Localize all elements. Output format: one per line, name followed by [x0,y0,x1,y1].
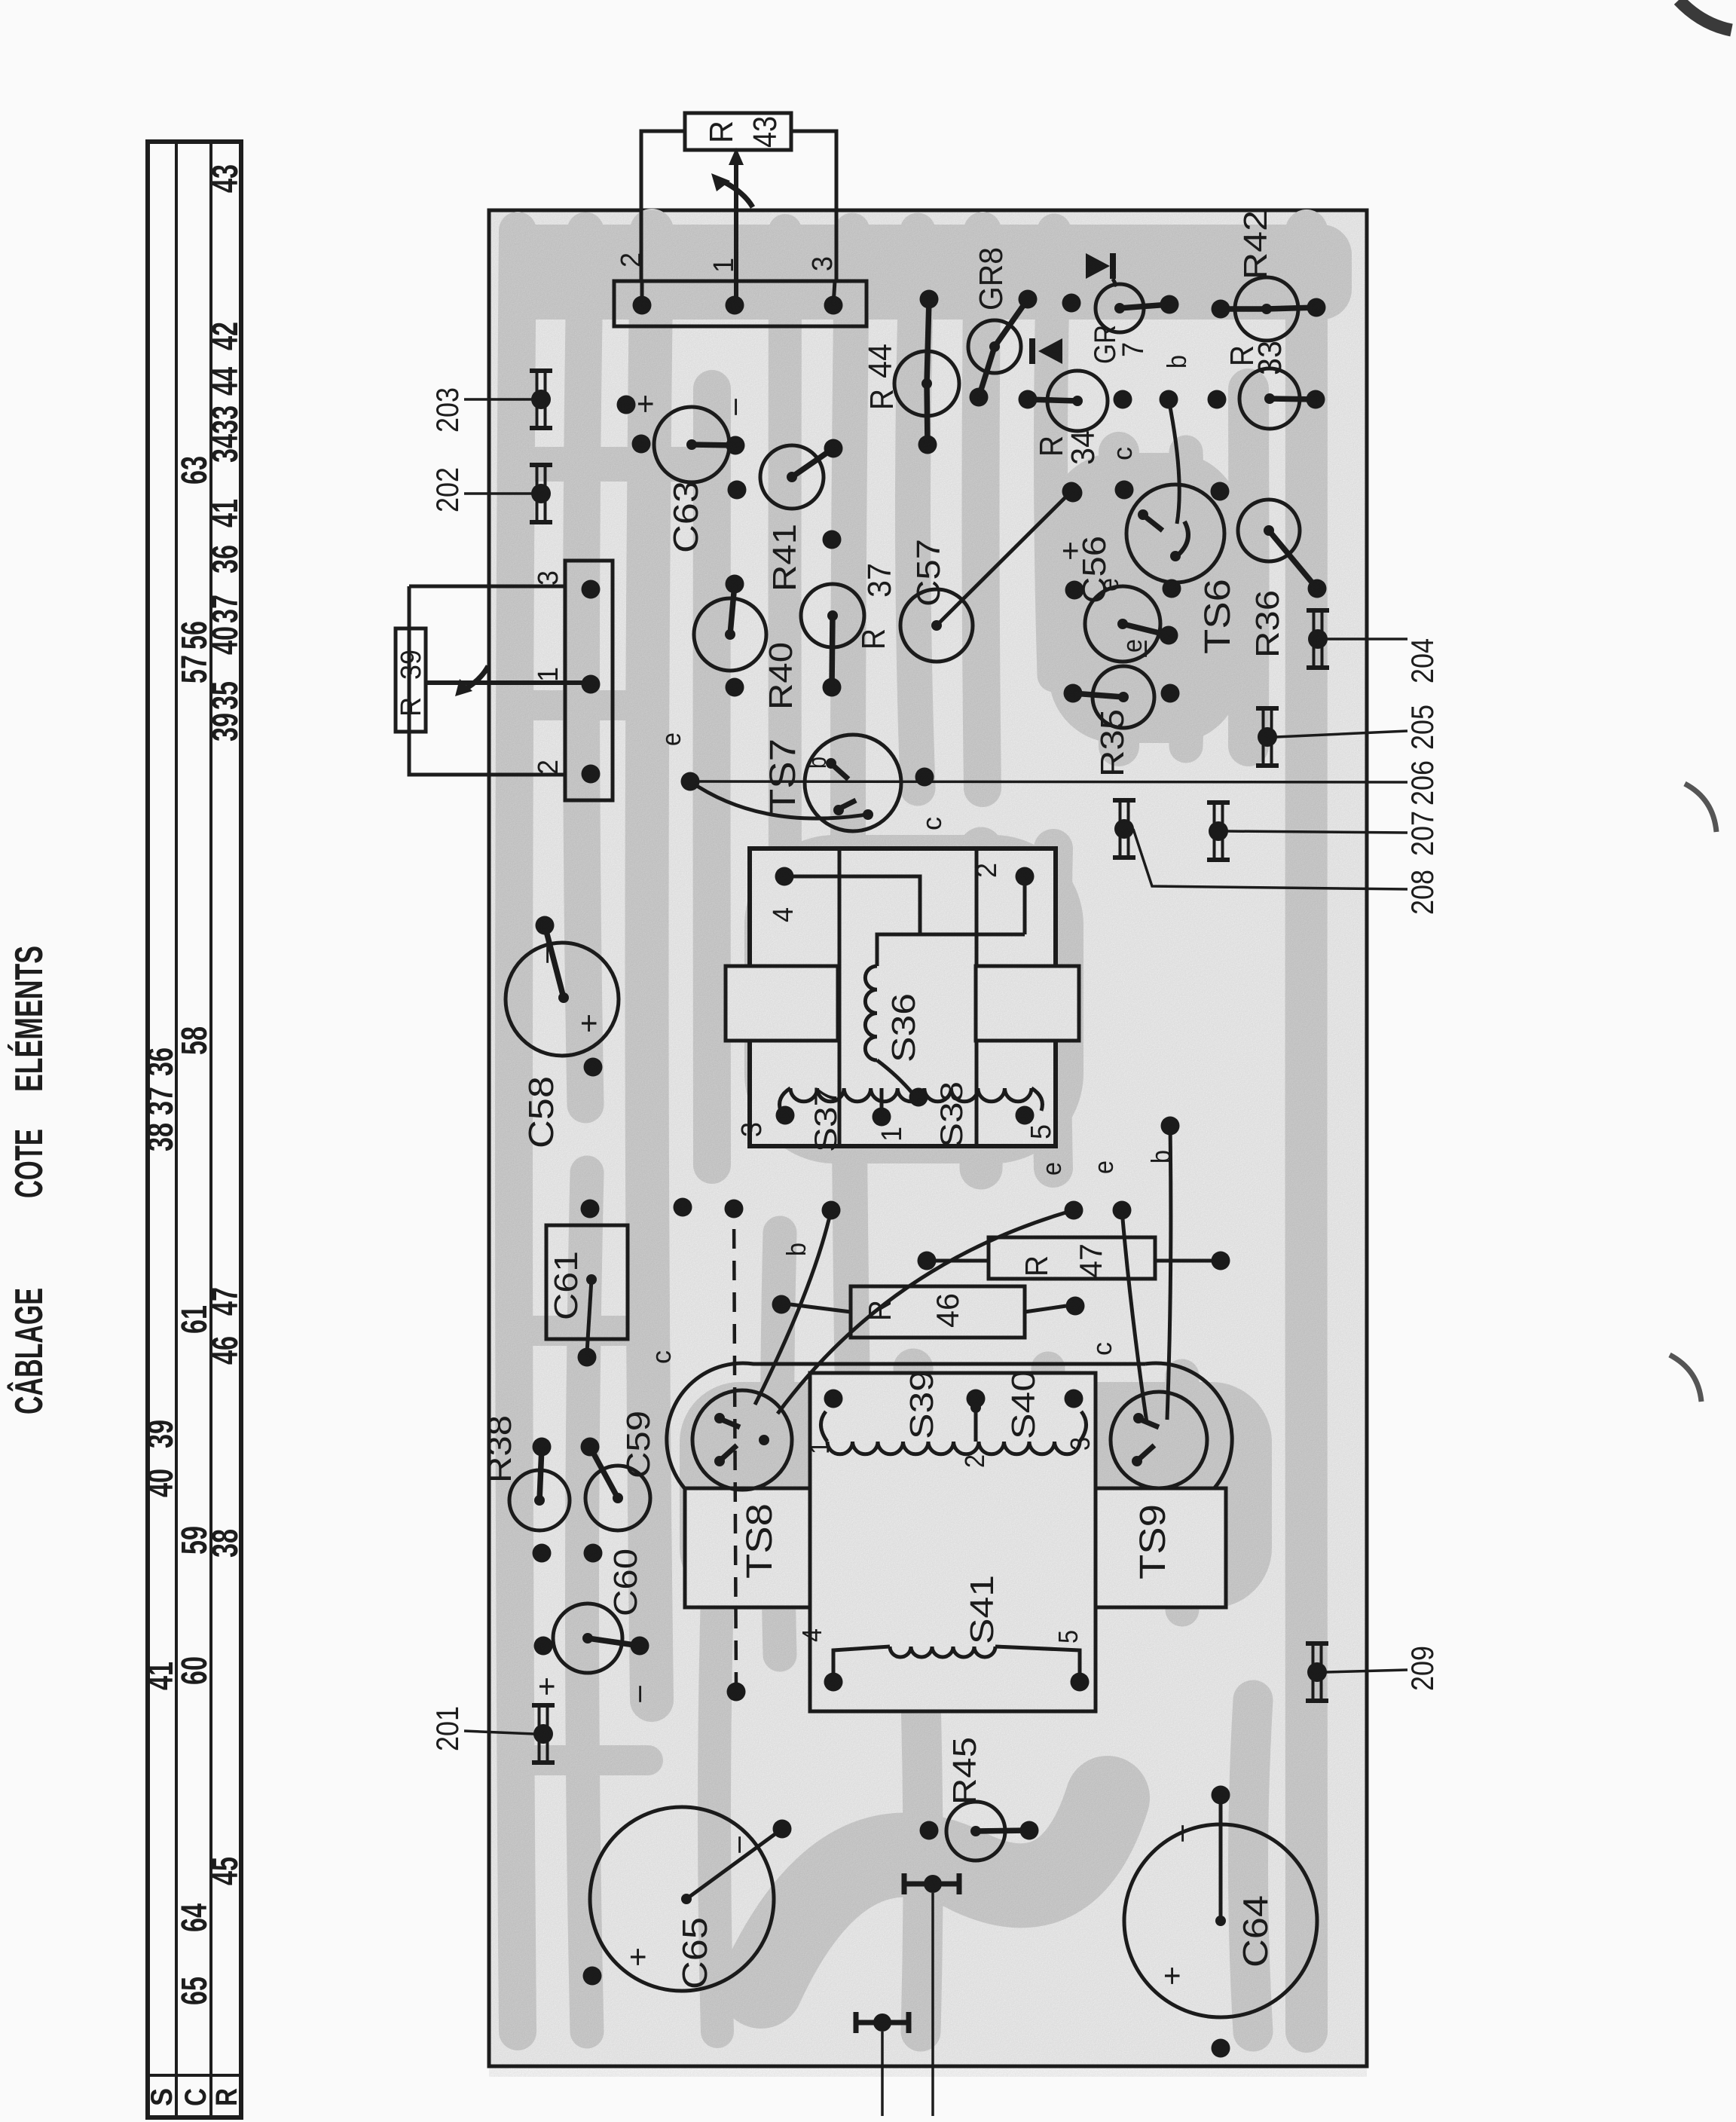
svg-text:204: 204 [1404,638,1440,683]
svg-text:44: 44 [206,367,246,396]
svg-text:R: R [210,2088,243,2106]
svg-text:205: 205 [1404,705,1440,750]
svg-text:40: 40 [206,626,246,655]
svg-text:38: 38 [206,1529,246,1558]
svg-text:57: 57 [175,655,215,683]
svg-text:R: R [396,697,427,717]
svg-text:47: 47 [206,1287,246,1316]
svg-text:40: 40 [141,1469,181,1497]
svg-text:39: 39 [206,713,246,741]
svg-text:C: C [179,2088,212,2106]
svg-text:208: 208 [1404,870,1440,915]
svg-text:209: 209 [1404,1646,1440,1691]
svg-text:COTE: COTE [8,1129,51,1198]
svg-text:45: 45 [206,1857,246,1885]
svg-text:S: S [145,2088,179,2106]
svg-text:39: 39 [396,650,427,680]
svg-text:37: 37 [206,595,246,623]
svg-text:43: 43 [206,164,246,193]
svg-text:60: 60 [175,1656,215,1685]
svg-text:41: 41 [206,499,246,527]
svg-text:46: 46 [206,1336,246,1365]
svg-text:202: 202 [429,467,465,512]
svg-text:34: 34 [206,434,246,463]
svg-text:43: 43 [747,116,784,148]
svg-text:203: 203 [429,387,465,433]
svg-text:37: 37 [141,1087,181,1115]
svg-text:R: R [703,121,740,143]
svg-text:35: 35 [206,681,246,710]
svg-text:64: 64 [175,1903,215,1932]
svg-text:ELÉMENTS: ELÉMENTS [8,946,51,1092]
svg-text:201: 201 [429,1706,465,1751]
svg-text:65: 65 [175,1977,215,2005]
svg-text:33: 33 [206,405,246,434]
svg-text:CÂBLAGE: CÂBLAGE [7,1288,51,1414]
svg-text:58: 58 [175,1026,215,1055]
svg-text:207: 207 [1404,811,1440,856]
svg-text:36: 36 [206,545,246,573]
svg-text:42: 42 [206,322,246,350]
svg-text:38: 38 [141,1123,181,1151]
svg-text:39: 39 [141,1420,181,1448]
svg-text:206: 206 [1404,760,1440,806]
